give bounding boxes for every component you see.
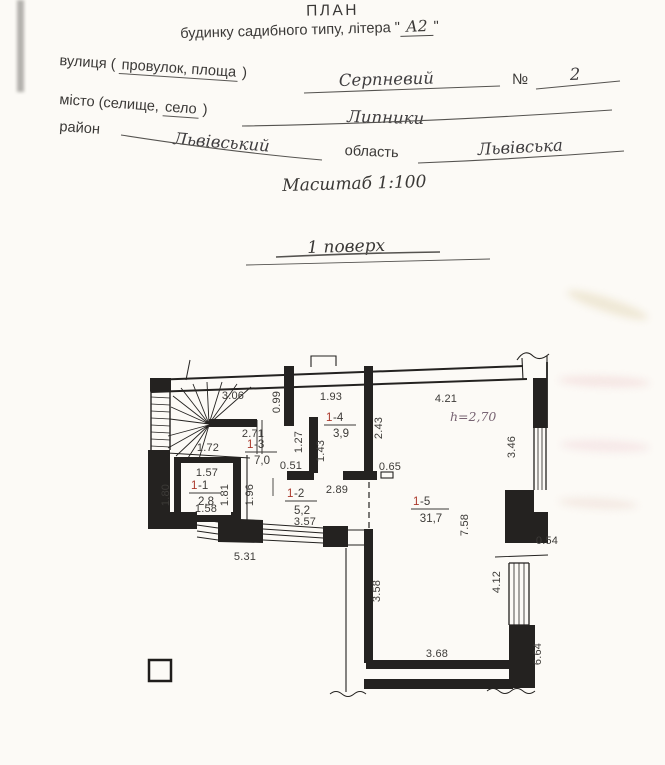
dim-label: 1.80 xyxy=(160,484,172,506)
room-area: 7,0 xyxy=(254,455,270,467)
dim-label: 2.89 xyxy=(326,484,348,496)
scanned-floor-plan-page: ПЛАН будинку садибного типу, літера "А2"… xyxy=(0,0,665,765)
room-area: 31,7 xyxy=(420,513,442,525)
right-wall xyxy=(495,362,548,688)
dim-label: 1.27 xyxy=(293,431,305,453)
dim-label: 0.65 xyxy=(379,461,401,473)
legend-square-mark xyxy=(149,660,171,681)
room-number: -1 xyxy=(198,480,208,492)
dim-label: 0.51 xyxy=(280,460,302,472)
dim-label: 4.21 xyxy=(435,393,457,405)
wall-break-tick xyxy=(186,360,190,380)
dim-label: 1.72 xyxy=(197,442,219,454)
room-area: 5,2 xyxy=(294,505,310,517)
dim-label: 7.58 xyxy=(459,514,471,536)
lower-walls xyxy=(330,529,535,697)
room-number: -2 xyxy=(294,488,304,500)
room-number: -3 xyxy=(254,439,264,451)
window-hatch xyxy=(197,519,218,540)
dim-label: 3.68 xyxy=(426,648,448,660)
room-label-1-2: 1 -2 5,2 xyxy=(285,488,317,517)
dim-label: 1.57 xyxy=(196,467,218,479)
dim-label: 5.31 xyxy=(234,551,256,563)
ceiling-height-note: h=2,70 xyxy=(450,409,496,424)
room-area: 2,8 xyxy=(198,496,214,508)
room-number-red: 1 xyxy=(413,496,419,508)
dim-label: 3.57 xyxy=(294,516,316,528)
dim-label: 1.81 xyxy=(219,484,231,506)
stair-landing-rail xyxy=(209,419,257,427)
dim-label: 3.46 xyxy=(506,436,518,458)
number-value: 2 xyxy=(568,65,580,84)
cut-squiggle xyxy=(487,689,535,694)
floor-plan-drawing: 3.06 1.93 4.21 2.71 1.72 0.51 0.65 1.57 … xyxy=(148,353,558,697)
dim-label: 0.99 xyxy=(271,391,283,413)
handwritten-values: Серпневий 2 Липники Львівський Львівська xyxy=(172,65,581,159)
dim-label: 0.54 xyxy=(536,535,558,547)
bottom-left-wall xyxy=(148,512,364,547)
dim-label: 3.06 xyxy=(222,390,244,402)
room-label-1-5: 1 -5 31,7 xyxy=(411,496,449,525)
dim-label: 4.12 xyxy=(491,571,503,593)
floor-plan: Серпневий 2 Липники Львівський Львівська xyxy=(0,0,665,765)
room-number-red: 1 xyxy=(326,412,332,424)
window-hatch xyxy=(514,563,524,625)
room-number: -4 xyxy=(333,412,344,424)
street-value: Серпневий xyxy=(339,69,435,90)
district-value: Львівський xyxy=(172,129,271,156)
room-label-1-3: 1 -3 7,0 xyxy=(245,439,277,467)
window-hatch xyxy=(538,428,542,490)
dim-label: 6.64 xyxy=(532,643,544,665)
room-area: 3,9 xyxy=(333,428,349,440)
wall-break-mark xyxy=(311,356,336,367)
city-value: Липники xyxy=(346,107,424,128)
cut-squiggle xyxy=(330,692,366,697)
room-number-red: 1 xyxy=(247,439,253,451)
dim-label: 2.43 xyxy=(373,417,385,439)
dim-label: 1.93 xyxy=(320,391,342,403)
room-label-1-4: 1 -4 3,9 xyxy=(324,412,356,440)
dim-label: 3.58 xyxy=(371,580,383,602)
room-number-red: 1 xyxy=(287,488,293,500)
dim-label: 1.43 xyxy=(315,440,327,462)
room-number-red: 1 xyxy=(191,480,197,492)
window-hatch xyxy=(151,397,170,447)
dim-label: 1.96 xyxy=(244,484,256,506)
region-value: Львівська xyxy=(476,136,563,159)
room-number: -5 xyxy=(420,496,430,508)
